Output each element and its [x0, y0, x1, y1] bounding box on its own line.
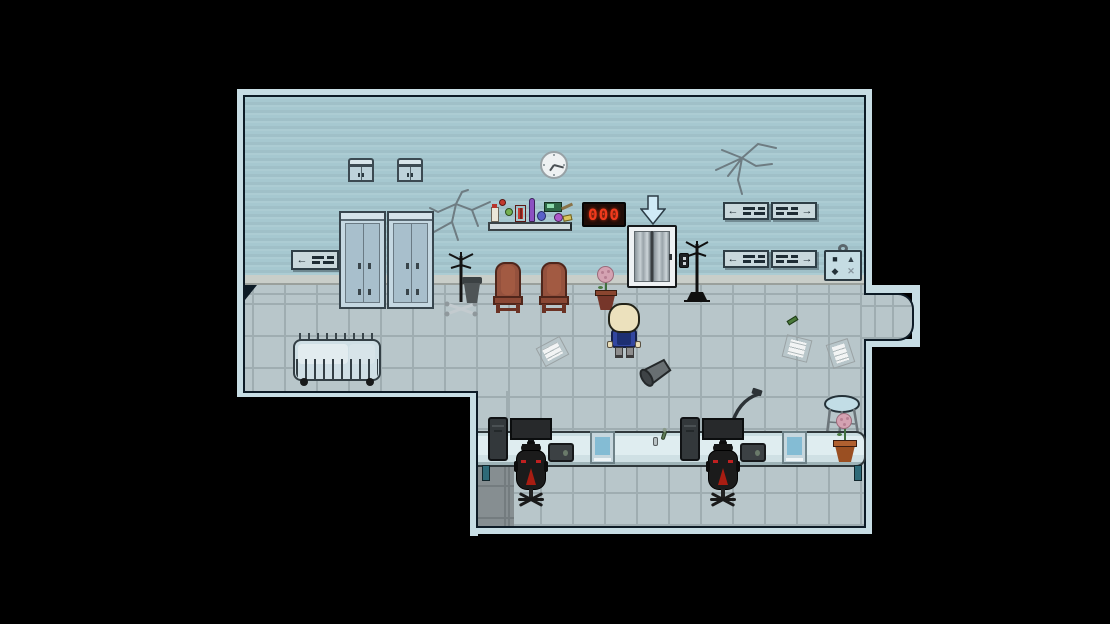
- document-page: [787, 437, 802, 455]
- sign-text-lines: [776, 255, 798, 263]
- wall-cabinet[interactable]: [348, 158, 374, 182]
- document-page: [595, 437, 610, 455]
- elevator-door-seam: [669, 254, 672, 260]
- diamond-icon: ◆: [832, 267, 839, 276]
- player-leg: [626, 347, 634, 358]
- locker-handle: [358, 289, 361, 295]
- player-leg: [615, 347, 623, 358]
- down-arrow-icon: [640, 195, 666, 225]
- tipped-trash-can[interactable]: [637, 357, 675, 387]
- chair-red-detail: [521, 460, 526, 463]
- chair-red-detail: [713, 460, 718, 463]
- sign-text-lines: [743, 207, 765, 215]
- sign-east-lower-left[interactable]: ←: [723, 250, 769, 268]
- crib-bars: [296, 359, 378, 379]
- cabinet-handle: [358, 173, 360, 177]
- chair-bar: [544, 308, 564, 311]
- bottle: [491, 207, 499, 222]
- device-screen: [547, 204, 554, 208]
- x-icon: ✕: [847, 267, 855, 276]
- document-edge: [594, 458, 611, 461]
- left-arrow-icon: ←: [728, 254, 739, 265]
- player-hand: [607, 341, 613, 348]
- sign-east-upper-left[interactable]: ←: [723, 202, 769, 220]
- document-stack[interactable]: [590, 431, 615, 464]
- pc-tower[interactable]: [680, 417, 700, 461]
- green-flask: [505, 208, 513, 216]
- blue-flask: [537, 211, 546, 221]
- game-viewport[interactable]: ←: [0, 0, 1110, 624]
- waiting-chair[interactable]: [538, 262, 570, 314]
- violet-flask: [554, 213, 563, 222]
- flower-head: [836, 413, 852, 429]
- monitor-screen: [702, 418, 744, 440]
- player-hand: [635, 341, 641, 348]
- coat-stand[interactable]: [681, 240, 713, 304]
- plaque-panel: ■ ▲ ◆ ✕: [824, 250, 862, 281]
- sign-east-upper-right[interactable]: →: [771, 202, 817, 220]
- leaf: [598, 286, 603, 289]
- desk-item[interactable]: [653, 437, 658, 446]
- wall-clock[interactable]: [540, 151, 568, 179]
- bottle-cap: [492, 204, 497, 208]
- right-arrow-icon: →: [802, 254, 813, 265]
- hour-hand: [549, 164, 555, 171]
- chair-pad: [547, 265, 561, 295]
- chair-armrest: [544, 461, 548, 472]
- waiting-chair[interactable]: [492, 262, 524, 314]
- desk-leg: [854, 465, 862, 481]
- laptop[interactable]: [740, 443, 766, 462]
- storage-locker[interactable]: [339, 211, 386, 309]
- chair-armrest: [706, 461, 710, 472]
- chair-bar: [498, 308, 518, 311]
- floor-alcove-exit: [862, 295, 912, 339]
- locker-divider: [363, 223, 364, 303]
- cabinet-handle: [362, 173, 364, 177]
- square-icon: ■: [832, 255, 837, 264]
- crib-wheel: [366, 378, 374, 386]
- locker-handle: [406, 289, 409, 295]
- gaming-chair[interactable]: [514, 441, 548, 507]
- wall-crack-icon: [428, 188, 492, 242]
- pot-rim: [595, 290, 617, 296]
- pen: [561, 203, 573, 211]
- elevator-door-right: [653, 231, 670, 282]
- triangle-icon: ▲: [847, 255, 856, 264]
- sign-text-lines: [312, 256, 334, 264]
- right-arrow-icon: →: [802, 206, 813, 217]
- document-edge: [786, 458, 803, 461]
- trash-bin[interactable]: [461, 275, 483, 303]
- red-book: [515, 205, 526, 222]
- chair-armrest: [736, 461, 740, 472]
- sign-text-lines: [743, 255, 765, 263]
- floor-number-value: 000: [588, 207, 620, 223]
- symbol-plaque[interactable]: ■ ▲ ◆ ✕: [824, 244, 862, 282]
- locker-handle: [406, 263, 409, 269]
- bin-body: [463, 283, 481, 303]
- pot-body: [833, 447, 857, 462]
- yellow-item: [562, 214, 572, 222]
- gaming-chair[interactable]: [706, 441, 740, 507]
- document-stack[interactable]: [782, 431, 807, 464]
- crib-wheel: [300, 378, 308, 386]
- elevator[interactable]: [627, 225, 677, 288]
- locker-handle: [368, 263, 371, 269]
- locker-top: [389, 213, 432, 221]
- locker-top: [341, 213, 384, 221]
- locker-handle: [416, 289, 419, 295]
- wall-crack-icon: [712, 136, 778, 196]
- purple-vial: [529, 198, 535, 222]
- player-back: [617, 332, 631, 345]
- elevator-door-left: [634, 231, 651, 282]
- left-arrow-icon: ←: [728, 206, 739, 217]
- cabinet-handle: [407, 173, 409, 177]
- locker-handle: [358, 263, 361, 269]
- pot-rim: [833, 440, 857, 447]
- sign-east-lower-right[interactable]: →: [771, 250, 817, 268]
- desk-leg: [482, 465, 490, 481]
- sign-west[interactable]: ←: [291, 250, 339, 270]
- mouse: [563, 450, 568, 456]
- lab-shelf[interactable]: [488, 198, 572, 231]
- bin-rim: [462, 277, 482, 284]
- locker-handle: [416, 263, 419, 269]
- chair-red-detail: [536, 460, 541, 463]
- red-flask: [499, 199, 506, 206]
- desk-potted-flower[interactable]: [832, 413, 858, 463]
- sign-text-lines: [776, 207, 798, 215]
- floor-number-display: 000: [582, 202, 626, 227]
- locker-divider: [411, 223, 412, 303]
- flower-head: [597, 266, 614, 283]
- chair-pad: [501, 265, 515, 295]
- mouse: [755, 450, 760, 456]
- elevator-doors: [634, 231, 670, 282]
- storage-locker[interactable]: [387, 211, 434, 309]
- player-character[interactable]: [607, 303, 641, 361]
- wheeled-crib[interactable]: [293, 333, 381, 387]
- stem: [844, 427, 846, 441]
- leaf: [837, 433, 842, 436]
- chair-red-detail: [728, 460, 733, 463]
- left-arrow-icon: ←: [297, 255, 308, 266]
- cabinet-handle: [411, 173, 413, 177]
- chair-armrest: [514, 461, 518, 472]
- wall-cabinet[interactable]: [397, 158, 423, 182]
- pc-tower[interactable]: [488, 417, 508, 461]
- locker-handle: [368, 289, 371, 295]
- shelf-board: [488, 222, 572, 231]
- laptop[interactable]: [548, 443, 574, 462]
- monitor-screen: [510, 418, 552, 440]
- player-hair: [608, 303, 640, 333]
